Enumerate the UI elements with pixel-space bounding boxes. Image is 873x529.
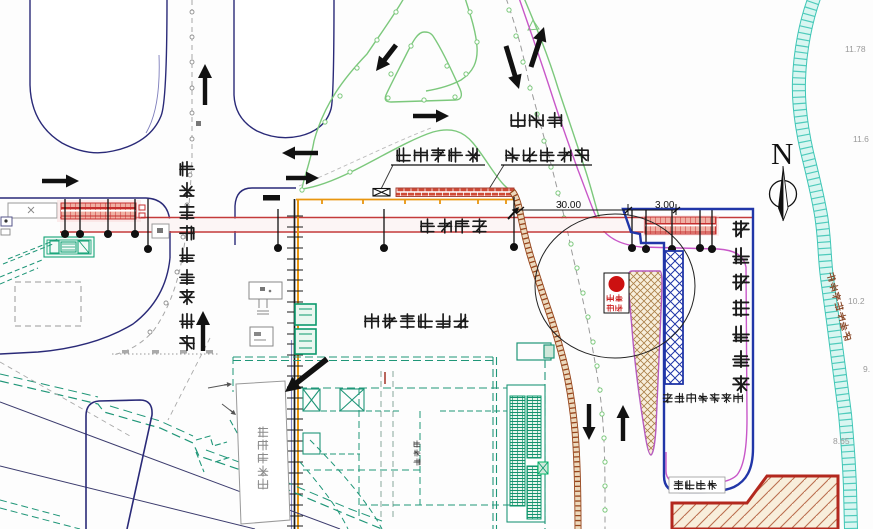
svg-text:10.2: 10.2 bbox=[848, 296, 865, 306]
svg-text:8.65: 8.65 bbox=[833, 436, 850, 446]
svg-text:30.00: 30.00 bbox=[556, 200, 581, 211]
svg-text:N: N bbox=[771, 136, 793, 171]
svg-text:9.: 9. bbox=[863, 364, 870, 374]
svg-text:3.00: 3.00 bbox=[655, 200, 675, 211]
svg-text:11.78: 11.78 bbox=[845, 44, 866, 54]
svg-text:11.6: 11.6 bbox=[853, 134, 869, 144]
